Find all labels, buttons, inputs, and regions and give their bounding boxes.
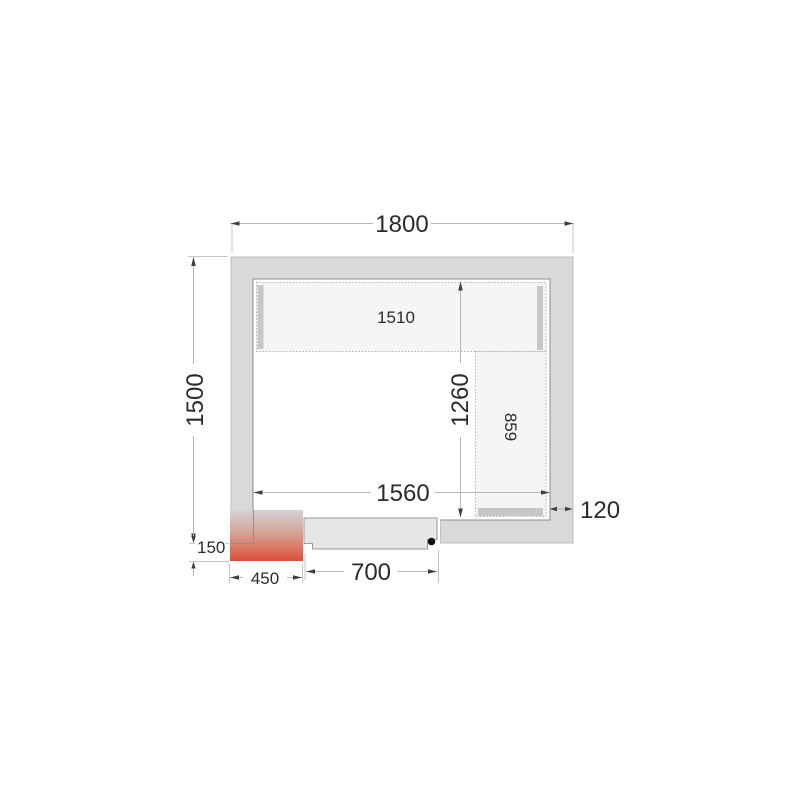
dim-120-label: 120 (580, 497, 620, 524)
top-shelf-length-label: 1510 (377, 308, 415, 327)
top-shelf-support-right (537, 286, 543, 350)
side-shelf: 859 (476, 352, 547, 517)
dim-700-arrow-left (306, 569, 315, 574)
dim-1560-label: 1560 (376, 480, 429, 507)
dim-450-arrow-right (293, 575, 302, 580)
door-left-step (304, 544, 313, 551)
top-shelf: 1510 (257, 283, 547, 352)
dim-450-arrow-left (230, 575, 239, 580)
dim-150-arrow-bottom (191, 562, 195, 569)
dim-1800-label: 1800 (375, 211, 428, 238)
dim-1260-label: 1260 (447, 373, 474, 426)
dim-1500-label: 1500 (182, 373, 209, 426)
door-heater-block (230, 510, 303, 561)
dim-1500-arrow-top (191, 257, 196, 266)
door-slab (304, 518, 439, 551)
dim-outer-height: 1500 (182, 257, 228, 543)
dim-heater-width: 450 (230, 564, 303, 588)
top-shelf-support-left (258, 285, 264, 349)
dim-700-label: 700 (351, 559, 391, 586)
door-panel (304, 518, 437, 549)
heater-gradient-area (230, 510, 303, 561)
door-handle-dot (428, 538, 436, 546)
dim-outer-width: 1800 (231, 211, 574, 253)
dim-700-arrow-right (428, 569, 437, 574)
dim-150-label: 150 (197, 538, 225, 557)
dim-1800-arrow-right (565, 221, 574, 226)
side-shelf-length-label: 859 (501, 413, 520, 441)
dim-450-label: 450 (251, 569, 279, 588)
floor-plan-canvas: 1510 859 1800 1500 (0, 0, 800, 800)
side-shelf-support-bottom (478, 508, 543, 516)
dim-door-width: 700 (305, 550, 439, 586)
